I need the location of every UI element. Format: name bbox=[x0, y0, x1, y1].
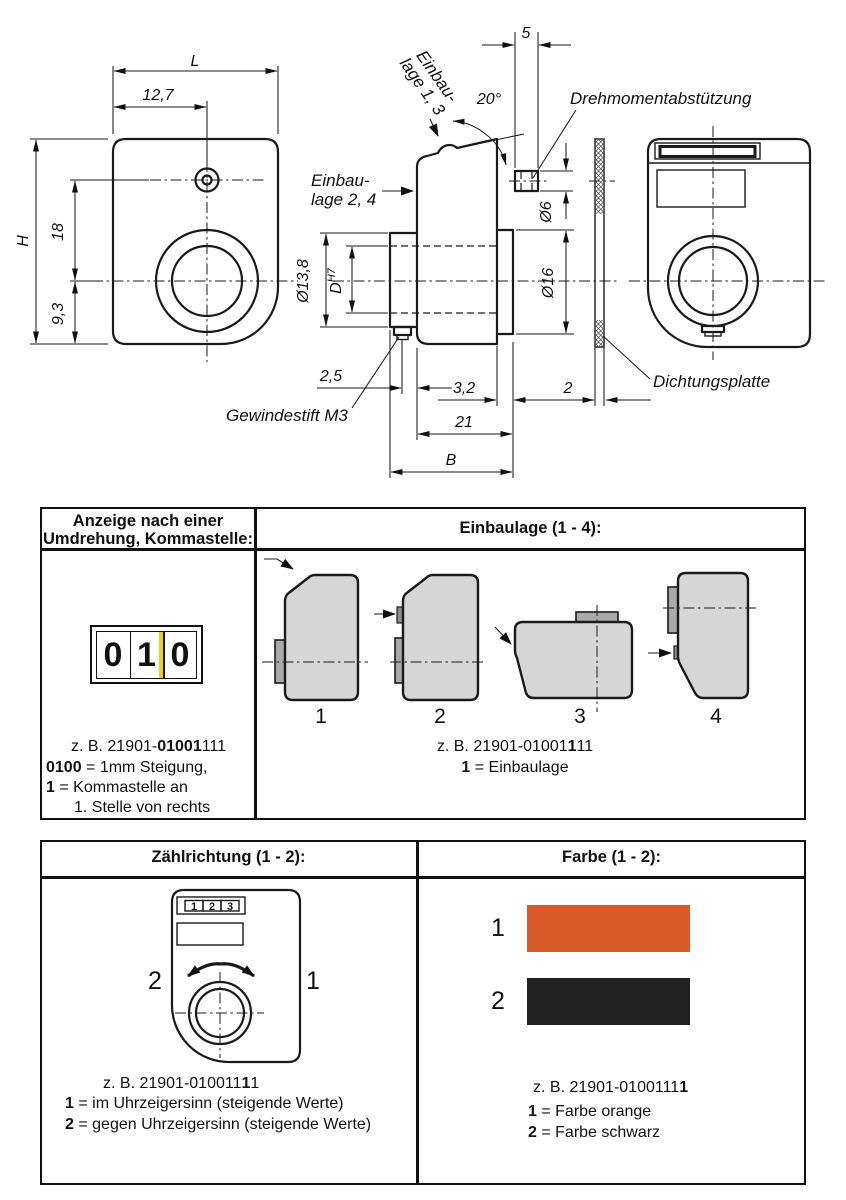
dim-L-label: L bbox=[191, 53, 200, 70]
farbe-example-prefix: z. B. 21901-0100111 bbox=[533, 1079, 679, 1096]
einbaulage-example-prefix: z. B. 21901-01001 bbox=[437, 738, 568, 755]
device-digit-2: 2 bbox=[209, 901, 215, 913]
einbaulage-example-suffix: 11 bbox=[577, 738, 594, 755]
dim-B-label: B bbox=[446, 452, 457, 469]
figure3-number: 3 bbox=[574, 705, 586, 728]
farbe-legend2-text: = Farbe schwarz bbox=[537, 1124, 660, 1141]
dim-2-label: 2 bbox=[563, 380, 573, 397]
einbaulage-figure-2: 2 bbox=[374, 575, 486, 728]
device-label-field bbox=[177, 923, 243, 945]
einbaulage-figures: 1 2 3 4 bbox=[255, 555, 806, 740]
zaehlrichtung-figure: 1 2 3 2 1 bbox=[40, 879, 416, 1069]
dim-21-label: 21 bbox=[454, 414, 473, 431]
angle-arc-left bbox=[453, 121, 484, 133]
rear-centerlines bbox=[629, 126, 827, 360]
comma-position-marker bbox=[159, 632, 163, 678]
einbaulage-legend-text: = Einbaulage bbox=[470, 759, 568, 776]
rotation-arrow-left bbox=[188, 964, 221, 976]
einbaulage-legend-key: 1 bbox=[461, 759, 470, 776]
rear-label-field bbox=[657, 170, 745, 207]
anzeige-legend-line3: 1. Stelle von rechts bbox=[74, 798, 210, 817]
dim-12_7-label: 12,7 bbox=[142, 87, 174, 104]
counter-digit-1: 0 bbox=[97, 632, 129, 678]
counter-cell-divider-1 bbox=[130, 632, 132, 678]
swatch-2-number: 2 bbox=[486, 978, 510, 1025]
dim-5-extensions bbox=[515, 32, 538, 168]
einbaulage-2-4-label-line1: Einbau- bbox=[311, 171, 370, 190]
einbaulage-figure-4: 4 bbox=[648, 573, 756, 728]
figure2-number: 2 bbox=[434, 705, 446, 728]
rotation-arrow-right bbox=[221, 964, 254, 976]
anzeige-legend-line3-text: 1. Stelle von rechts bbox=[74, 799, 210, 816]
dim-9_3-label: 9,3 bbox=[50, 303, 67, 325]
seal-plate-view: Dichtungsplatte bbox=[595, 139, 770, 406]
seal-plate-hatch-top bbox=[596, 140, 603, 214]
einbaulage-1-3-label: Einbau- lage 1, 3 bbox=[396, 44, 464, 119]
device-body bbox=[172, 890, 300, 1062]
seal-plate-hatch-bottom bbox=[596, 320, 603, 346]
dim-H-label: H bbox=[15, 235, 32, 247]
farbe-legend-line1: 1 = Farbe orange bbox=[528, 1102, 651, 1121]
counter-cell-divider-2 bbox=[163, 632, 165, 678]
zaehlrichtung-example-prefix: z. B. 21901-010011 bbox=[103, 1075, 241, 1092]
anzeige-header-line2: Umdrehung, Kommastelle: bbox=[43, 531, 253, 549]
anzeige-example-suffix: 111 bbox=[202, 738, 226, 755]
zaehlrichtung-legend2-text: = gegen Uhrzeigersinn (steigende Werte) bbox=[74, 1116, 371, 1133]
zaehlrichtung-legend1-text: = im Uhrzeigersinn (steigende Werte) bbox=[74, 1095, 344, 1112]
side-slant-extension bbox=[457, 134, 524, 148]
dim-d6-label: Ø6 bbox=[538, 201, 555, 223]
dim-d16-label: Ø16 bbox=[540, 268, 557, 299]
dim-2_5-label: 2,5 bbox=[319, 368, 342, 385]
zaehlrichtung-legend-line2: 2 = gegen Uhrzeigersinn (steigende Werte… bbox=[65, 1115, 371, 1134]
front-view: L 12,7 H 18 9,3 bbox=[15, 53, 298, 362]
side-collar-outline bbox=[497, 230, 513, 334]
swatch-orange bbox=[527, 905, 690, 952]
swatch-1-number: 1 bbox=[486, 905, 510, 952]
dim-d13_8-label: Ø13,8 bbox=[295, 259, 312, 304]
drehmoment-label: Drehmomentabstützung bbox=[570, 89, 752, 108]
anzeige-example-prefix: z. B. 21901- bbox=[71, 738, 157, 755]
figure4-body bbox=[678, 573, 748, 698]
direction-1-number: 1 bbox=[306, 967, 320, 995]
anzeige-example-bold: 01001 bbox=[157, 738, 202, 755]
drehmoment-leader bbox=[533, 110, 576, 178]
einbaulage-example-code: z. B. 21901-01001111 bbox=[255, 737, 775, 756]
zaehlrichtung-legend1-key: 1 bbox=[65, 1095, 74, 1112]
anzeige-legend-line2: 1 = Kommastelle an bbox=[46, 778, 188, 797]
catalog-page: L 12,7 H 18 9,3 5 Ø6 Ø16 bbox=[0, 0, 846, 1200]
rear-view bbox=[629, 126, 827, 360]
zaehlrichtung-legend2-key: 2 bbox=[65, 1116, 74, 1133]
figure1-body bbox=[285, 575, 358, 700]
einbaulage-legend-line1: 1 = Einbaulage bbox=[255, 758, 775, 777]
farbe-header: Farbe (1 - 2): bbox=[419, 849, 804, 867]
table1-header-divider bbox=[40, 548, 806, 551]
anzeige-example-code: z. B. 21901-01001111 bbox=[44, 737, 253, 756]
zaehlrichtung-header: Zählrichtung (1 - 2): bbox=[43, 849, 414, 867]
anzeige-header: Anzeige nach einer Umdrehung, Kommastell… bbox=[43, 513, 253, 548]
dichtungsplatte-leader bbox=[603, 336, 650, 379]
device-digit-3: 3 bbox=[227, 901, 233, 913]
anzeige-legend-line2-text: = Kommastelle an bbox=[55, 779, 188, 796]
farbe-legend1-key: 1 bbox=[528, 1103, 537, 1120]
dim-18-label: 18 bbox=[50, 223, 67, 241]
dim-angle-label: 20° bbox=[476, 91, 502, 108]
farbe-legend2-key: 2 bbox=[528, 1124, 537, 1141]
dim-5-label: 5 bbox=[522, 25, 531, 42]
zaehlrichtung-example-code: z. B. 21901-01001111 bbox=[103, 1074, 259, 1093]
einbaulage-figure-1: 1 bbox=[262, 559, 368, 728]
zaehlrichtung-legend-line1: 1 = im Uhrzeigersinn (steigende Werte) bbox=[65, 1094, 344, 1113]
seal-plate-extensions bbox=[595, 347, 604, 406]
direction-2-number: 2 bbox=[148, 967, 162, 995]
figure1-number: 1 bbox=[315, 705, 327, 728]
angle-arc-right bbox=[484, 133, 506, 165]
dim-D-tolerance: H7 bbox=[326, 267, 338, 282]
side-bore-hidden-lines bbox=[390, 246, 497, 313]
figure3-arrow bbox=[495, 627, 511, 644]
anzeige-legend-line1: 0100 = 1mm Steigung, bbox=[46, 758, 207, 777]
rear-display-window bbox=[660, 147, 755, 157]
farbe-legend-line2: 2 = Farbe schwarz bbox=[528, 1123, 660, 1142]
device-digit-1: 1 bbox=[191, 901, 197, 913]
figure2-body bbox=[403, 575, 478, 700]
dim-3_2-label: 3,2 bbox=[453, 380, 475, 397]
anzeige-header-line1: Anzeige nach einer bbox=[43, 513, 253, 531]
gewindestift-leader bbox=[352, 337, 399, 408]
dim-D-letter: D bbox=[328, 282, 345, 294]
einbaulage-1-3-arrow bbox=[430, 119, 438, 136]
device-display-digits: 1 2 3 bbox=[185, 901, 239, 914]
farbe-example-bold: 1 bbox=[679, 1079, 688, 1096]
anzeige-legend-line1-key: 0100 bbox=[46, 759, 82, 776]
technical-drawing: L 12,7 H 18 9,3 5 Ø6 Ø16 bbox=[0, 0, 846, 500]
figure4-tab bbox=[668, 587, 678, 633]
table2-column-divider bbox=[416, 840, 419, 1185]
farbe-legend1-text: = Farbe orange bbox=[537, 1103, 651, 1120]
figure4-number: 4 bbox=[710, 705, 722, 728]
set-screw-outer bbox=[394, 327, 411, 335]
farbe-example-code: z. B. 21901-01001111 bbox=[533, 1078, 688, 1097]
side-view: 5 Ø6 Ø16 Ø13,8 DH7 2,5 3, bbox=[226, 25, 752, 478]
einbaulage-header: Einbaulage (1 - 4): bbox=[257, 520, 804, 538]
counter-digit-3: 0 bbox=[164, 632, 196, 678]
figure1-arrow bbox=[264, 559, 293, 569]
zaehlrichtung-example-suffix: 1 bbox=[250, 1075, 259, 1092]
front-extension-lines bbox=[30, 66, 278, 344]
dichtungsplatte-label: Dichtungsplatte bbox=[653, 372, 770, 391]
front-centerlines bbox=[92, 120, 298, 362]
anzeige-legend-line1-text: = 1mm Steigung, bbox=[82, 759, 208, 776]
einbaulage-figure-3: 3 bbox=[495, 605, 632, 728]
figure3-body bbox=[515, 622, 632, 698]
einbaulage-example-bold: 1 bbox=[568, 738, 577, 755]
swatch-black bbox=[527, 978, 690, 1025]
anzeige-legend-line2-key: 1 bbox=[46, 779, 55, 796]
gewindestift-label: Gewindestift M3 bbox=[226, 406, 348, 425]
einbaulage-2-4-label-line2: lage 2, 4 bbox=[311, 190, 376, 209]
